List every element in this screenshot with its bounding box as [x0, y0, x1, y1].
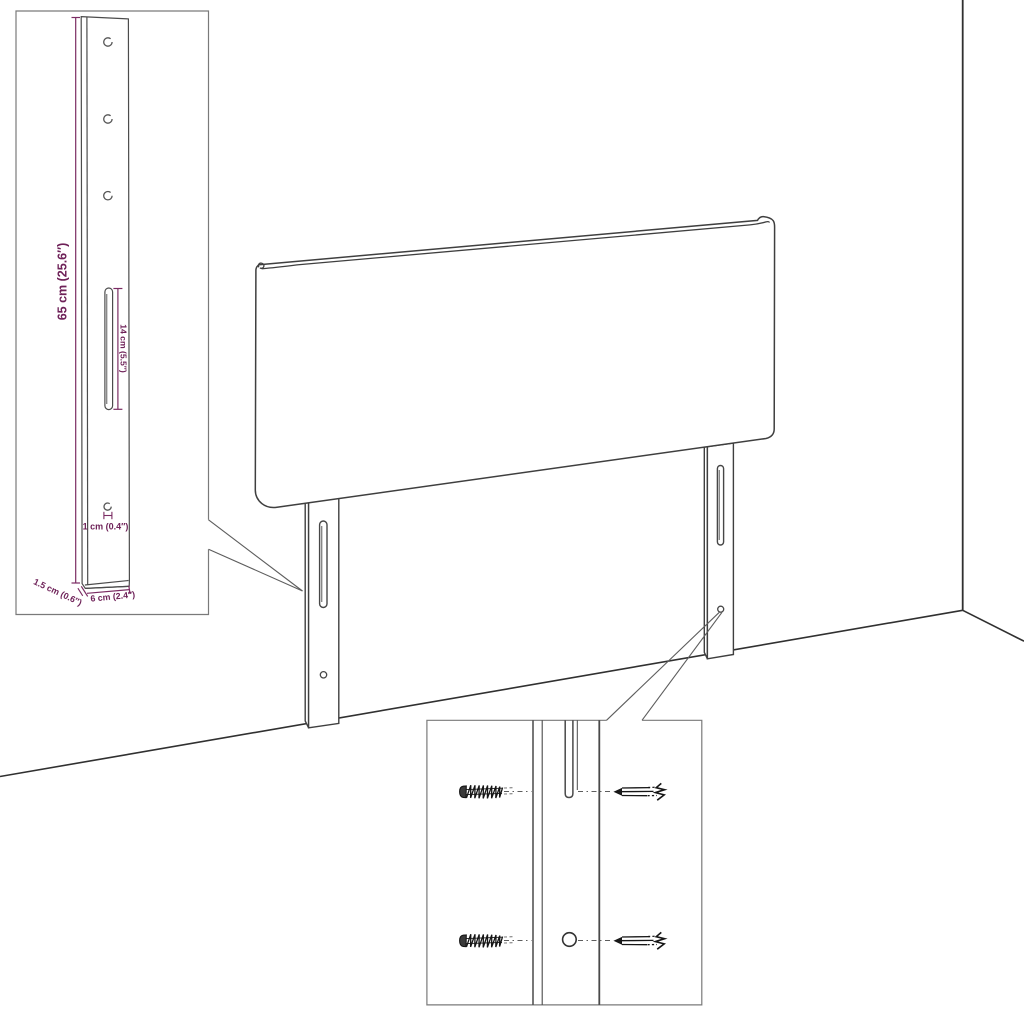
svg-text:1 cm (0.4″): 1 cm (0.4″) — [83, 521, 129, 531]
svg-text:14 cm (5.5″): 14 cm (5.5″) — [119, 324, 129, 373]
svg-text:65 cm (25.6″): 65 cm (25.6″) — [56, 243, 70, 321]
